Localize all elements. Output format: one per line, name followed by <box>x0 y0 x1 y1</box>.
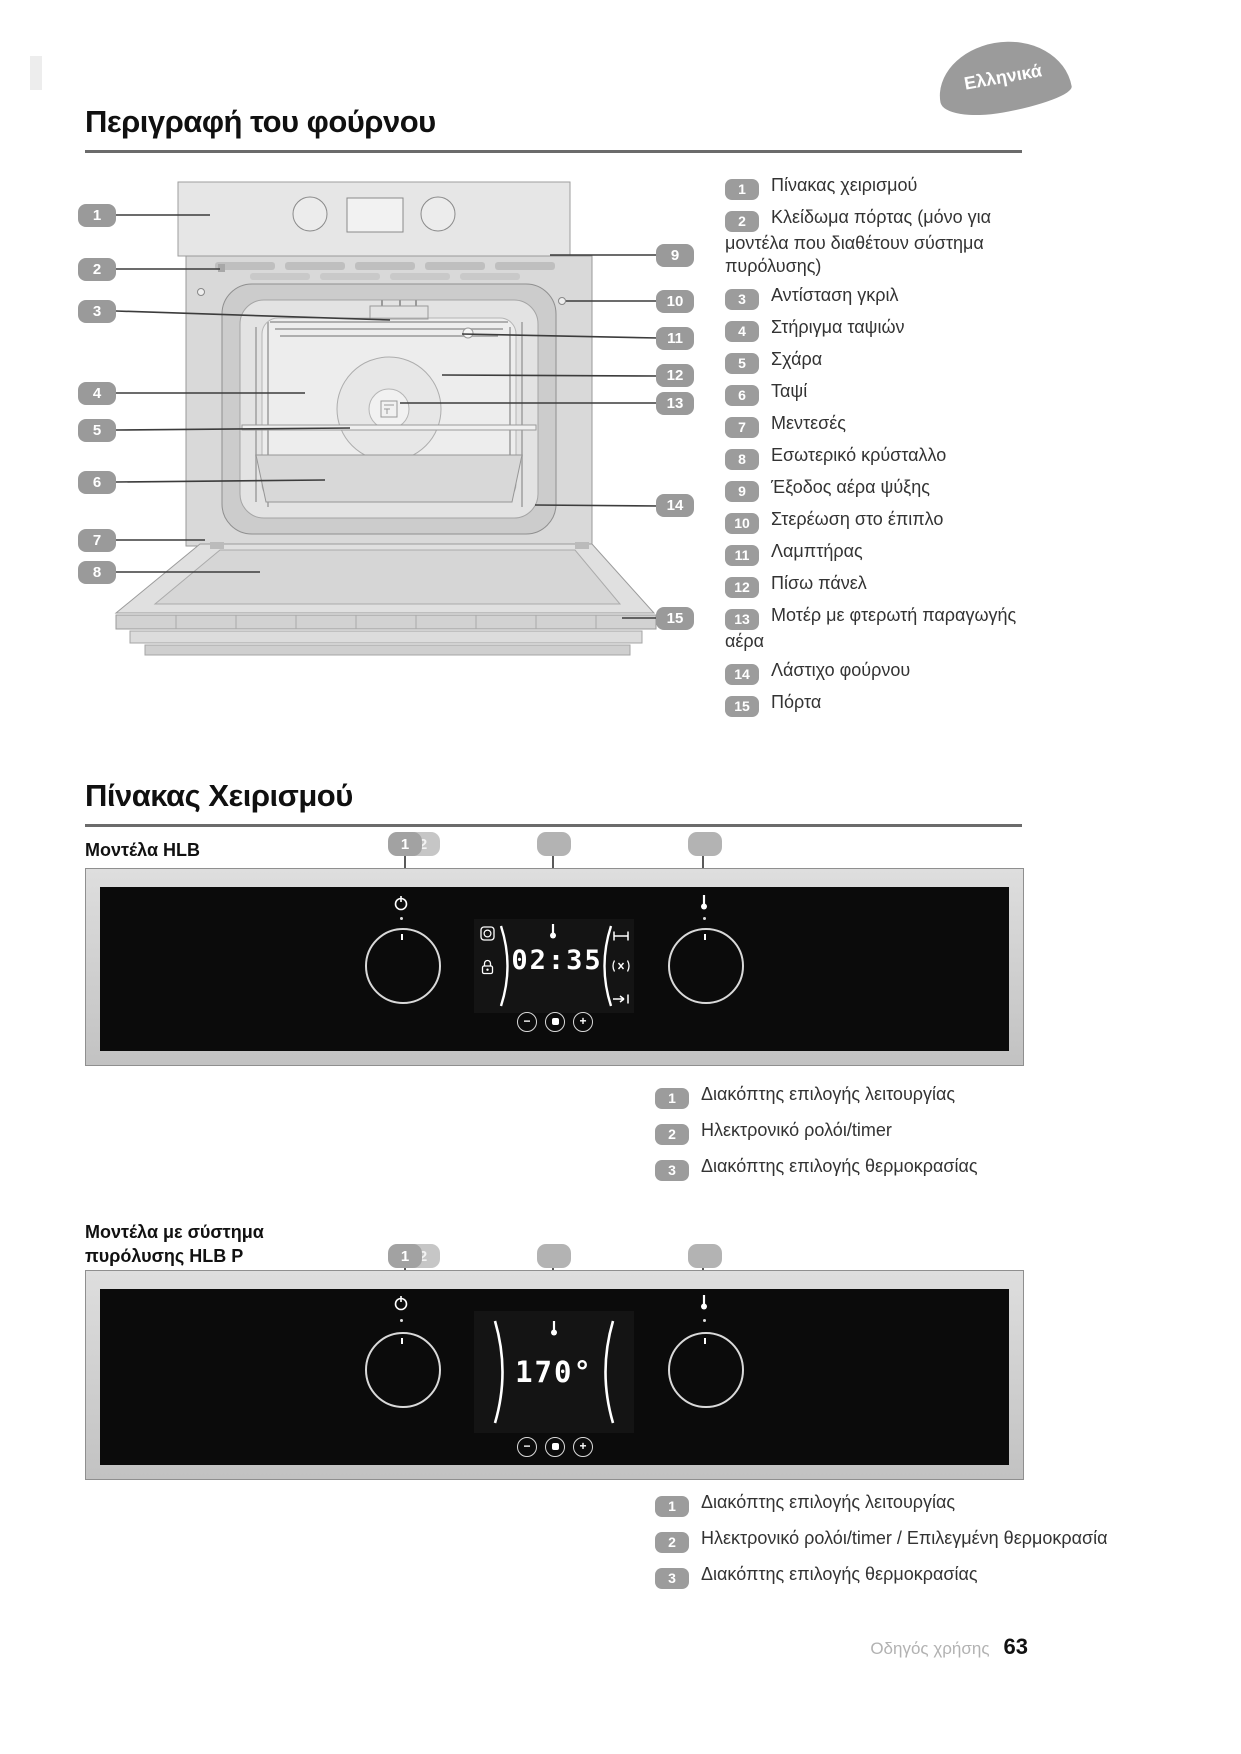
panel2-callout-right <box>688 1244 722 1268</box>
power-icon <box>393 895 409 916</box>
panel2-callout-1: 1 <box>388 1244 422 1268</box>
legend-num-badge: 2 <box>725 211 759 232</box>
legend-label: Πίνακας χειρισμού <box>771 175 917 195</box>
legend-item: 10Στερέωση στο έπιπλο <box>725 508 1032 534</box>
panel1-callout-right <box>688 832 722 856</box>
function-selector-knob <box>365 1332 441 1408</box>
legend-label: Κλείδωμα πόρτας (μόνο για μοντέλα που δι… <box>725 207 991 276</box>
minus-touch-button: − <box>517 1012 537 1032</box>
legend-num-badge: 14 <box>725 664 759 685</box>
end-time-icon <box>612 992 630 1010</box>
title-underline <box>85 824 1022 827</box>
temperature-value: 170° <box>510 1355 598 1389</box>
control-panel-hlb-p: 170° − + <box>85 1270 1024 1480</box>
legend-item: 3Αντίσταση γκριλ <box>725 284 1032 310</box>
legend-item: 3Διακόπτης επιλογής θερμοκρασίας <box>655 1563 1115 1589</box>
oven-parts-legend: 1Πίνακας χειρισμού 2Κλείδωμα πόρτας (μόν… <box>725 174 1032 723</box>
diagram-callout-9: 9 <box>656 244 694 267</box>
legend-num-badge: 15 <box>725 696 759 717</box>
legend-num-badge: 3 <box>655 1568 689 1589</box>
control-panel-hlb: 02:35 − <box>85 868 1024 1066</box>
oven-tray <box>256 455 522 502</box>
footer-doc-type: Οδηγός χρήσης <box>870 1639 989 1659</box>
legend-label: Λάστιχο φούρνου <box>771 660 910 680</box>
legend-label: Ηλεκτρονικό ρολόι/timer / Επιλεγμένη θερ… <box>701 1528 1108 1548</box>
panel-hlb-black-face: 02:35 − <box>100 887 1009 1051</box>
oven-diagram-svg <box>70 172 730 687</box>
knob-marker-dot <box>703 917 706 920</box>
legend-label: Ταψί <box>771 381 807 401</box>
legend-item: 13Μοτέρ με φτερωτή παραγωγής αέρα <box>725 604 1032 653</box>
function-selector-knob <box>365 928 441 1004</box>
panel1-callout-center <box>537 832 571 856</box>
diagram-callout-3: 3 <box>78 300 116 323</box>
fan-drawing <box>337 357 441 461</box>
panel-hlb-p-black-face: 170° − + <box>100 1289 1009 1465</box>
diagram-callout-2: 2 <box>78 258 116 281</box>
page-footer: Οδηγός χρήσης 63 <box>870 1634 1028 1660</box>
model-label-hlb-p: Μοντέλα με σύστημα πυρόλυσης HLB P <box>85 1220 300 1268</box>
thermometer-icon <box>549 1319 559 1342</box>
panel1-callout-1: 1 <box>388 832 422 856</box>
legend-num-badge: 4 <box>725 321 759 342</box>
legend-num-badge: 5 <box>725 353 759 374</box>
thermometer-icon <box>699 1293 709 1316</box>
legend-label: Στήριγμα ταψιών <box>771 317 905 337</box>
scan-artifact-strip <box>30 56 42 90</box>
legend-num-badge: 1 <box>725 179 759 200</box>
plus-touch-button: + <box>573 1437 593 1457</box>
panel2-legend: 1Διακόπτης επιλογής λειτουργίας 2Ηλεκτρο… <box>655 1491 1115 1599</box>
legend-label: Πίσω πάνελ <box>771 573 867 593</box>
language-badge: Ελληνικά <box>932 31 1074 123</box>
diagram-callout-12: 12 <box>656 364 694 387</box>
legend-item: 7Μεντεσές <box>725 412 1032 438</box>
ok-key-touch-button <box>545 1437 565 1457</box>
plus-touch-button: + <box>573 1012 593 1032</box>
legend-label: Έξοδος αέρα ψύξης <box>771 477 930 497</box>
diagram-callout-5: 5 <box>78 419 116 442</box>
oven-diagram: 1 2 3 4 5 6 7 8 9 10 11 12 13 14 15 <box>70 172 730 687</box>
legend-label: Στερέωση στο έπιπλο <box>771 509 943 529</box>
lock-icon <box>481 959 494 980</box>
legend-num-badge: 12 <box>725 577 759 598</box>
temperature-selector-knob <box>668 1332 744 1408</box>
temperature-selector-knob <box>668 928 744 1004</box>
minus-touch-button: − <box>517 1437 537 1457</box>
thermometer-icon <box>548 922 558 945</box>
legend-item: 11Λαμπτήρας <box>725 540 1032 566</box>
ok-key-touch-button <box>545 1012 565 1032</box>
legend-label: Διακόπτης επιλογής λειτουργίας <box>701 1084 955 1104</box>
legend-item: 1Διακόπτης επιλογής λειτουργίας <box>655 1491 1115 1517</box>
legend-num-badge: 2 <box>655 1532 689 1553</box>
legend-item: 3Διακόπτης επιλογής θερμοκρασίας <box>655 1155 1115 1181</box>
section-title-control-panel: Πίνακας Χειρισμού <box>85 778 353 814</box>
legend-item: 5Σχάρα <box>725 348 1032 374</box>
panel2-callout-center <box>537 1244 571 1268</box>
legend-label: Πόρτα <box>771 692 821 712</box>
legend-item: 4Στήριγμα ταψιών <box>725 316 1032 342</box>
knob-marker-dot <box>703 1319 706 1322</box>
clock-time-value: 02:35 <box>510 945 604 976</box>
clock-display: 02:35 <box>474 919 634 1013</box>
oven-door-drawing <box>116 542 656 655</box>
legend-label: Ηλεκτρονικό ρολόι/timer <box>701 1120 892 1140</box>
diagram-callout-14: 14 <box>656 494 694 517</box>
oven-lamp <box>463 328 473 338</box>
legend-num-badge: 10 <box>725 513 759 534</box>
legend-item: 2Κλείδωμα πόρτας (μόνο για μοντέλα που δ… <box>725 206 1032 278</box>
diagram-callout-10: 10 <box>656 290 694 313</box>
legend-item: 2Ηλεκτρονικό ρολόι/timer / Επιλεγμένη θε… <box>655 1527 1115 1553</box>
legend-num-badge: 8 <box>725 449 759 470</box>
manual-page: Ελληνικά Περιγραφή του φούρνου <box>0 0 1241 1754</box>
title-underline <box>85 150 1022 153</box>
section-title-oven-description: Περιγραφή του φούρνου <box>85 104 436 140</box>
temperature-display: 170° <box>474 1311 634 1433</box>
diagram-callout-7: 7 <box>78 529 116 552</box>
legend-label: Διακόπτης επιλογής θερμοκρασίας <box>701 1156 978 1176</box>
legend-item: 12Πίσω πάνελ <box>725 572 1032 598</box>
legend-item: 1Πίνακας χειρισμού <box>725 174 1032 200</box>
diagram-callout-13: 13 <box>656 392 694 415</box>
legend-item: 8Εσωτερικό κρύσταλλο <box>725 444 1032 470</box>
panel1-legend: 1Διακόπτης επιλογής λειτουργίας 2Ηλεκτρο… <box>655 1083 1115 1191</box>
legend-label: Αντίσταση γκριλ <box>771 285 899 305</box>
thermometer-icon <box>699 893 709 916</box>
legend-num-badge: 1 <box>655 1088 689 1109</box>
diagram-callout-15: 15 <box>656 607 694 630</box>
legend-num-badge: 9 <box>725 481 759 502</box>
legend-label: Μεντεσές <box>771 413 846 433</box>
legend-item: 15Πόρτα <box>725 691 1032 717</box>
diagram-callout-1: 1 <box>78 204 116 227</box>
knob-marker-dot <box>400 1319 403 1322</box>
legend-num-badge: 11 <box>725 545 759 566</box>
legend-num-badge: 3 <box>655 1160 689 1181</box>
sound-icon <box>611 959 631 978</box>
model-label-hlb: Μοντέλα HLB <box>85 838 345 862</box>
legend-item: 14Λάστιχο φούρνου <box>725 659 1032 685</box>
display-left-arc <box>492 1319 512 1430</box>
legend-num-badge: 3 <box>725 289 759 310</box>
legend-num-badge: 6 <box>725 385 759 406</box>
duration-icon <box>612 929 630 947</box>
auto-program-icon <box>480 926 495 946</box>
display-right-arc <box>596 1319 616 1430</box>
legend-item: 9Έξοδος αέρα ψύξης <box>725 476 1032 502</box>
legend-label: Διακόπτης επιλογής λειτουργίας <box>701 1492 955 1512</box>
legend-num-badge: 7 <box>725 417 759 438</box>
diagram-callout-11: 11 <box>656 327 694 350</box>
legend-num-badge: 2 <box>655 1124 689 1145</box>
legend-label: Λαμπτήρας <box>771 541 863 561</box>
diagram-callout-8: 8 <box>78 561 116 584</box>
oven-control-panel-drawing <box>178 182 570 256</box>
diagram-callout-6: 6 <box>78 471 116 494</box>
oven-cavity-drawing <box>222 284 556 534</box>
knob-marker-dot <box>400 917 403 920</box>
legend-label: Μοτέρ με φτερωτή παραγωγής αέρα <box>725 605 1016 651</box>
legend-label: Σχάρα <box>771 349 822 369</box>
legend-item: 2Ηλεκτρονικό ρολόι/timer <box>655 1119 1115 1145</box>
legend-label: Διακόπτης επιλογής θερμοκρασίας <box>701 1564 978 1584</box>
power-icon <box>393 1295 409 1316</box>
legend-label: Εσωτερικό κρύσταλλο <box>771 445 946 465</box>
legend-item: 6Ταψί <box>725 380 1032 406</box>
legend-num-badge: 13 <box>725 609 759 630</box>
diagram-callout-4: 4 <box>78 382 116 405</box>
footer-page-number: 63 <box>1004 1634 1028 1660</box>
legend-num-badge: 1 <box>655 1496 689 1517</box>
legend-item: 1Διακόπτης επιλογής λειτουργίας <box>655 1083 1115 1109</box>
